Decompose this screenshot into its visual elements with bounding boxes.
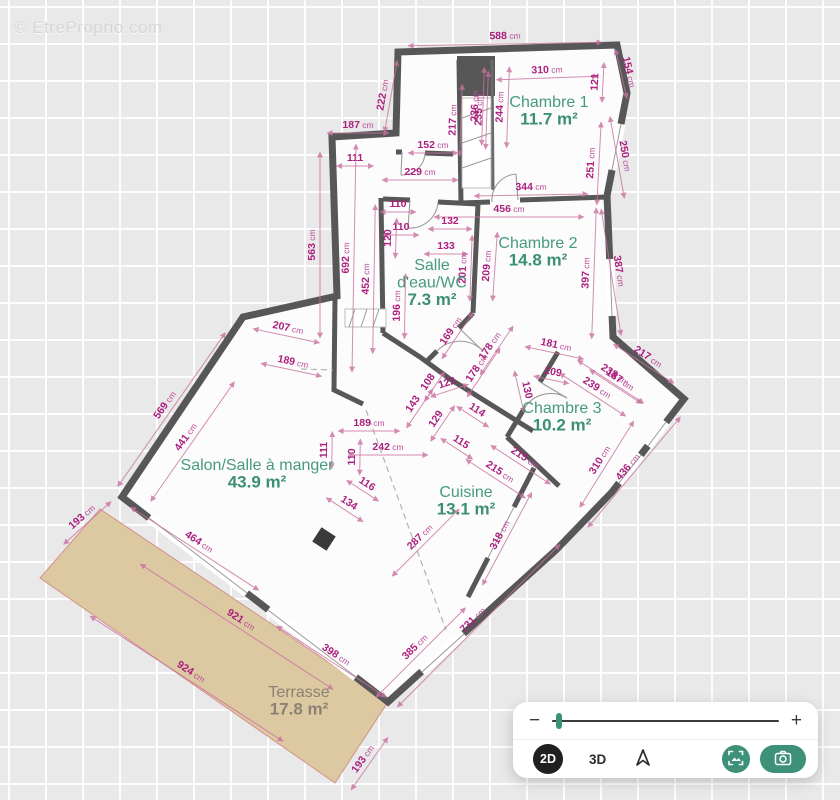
svg-text:217 cm: 217 cm [446,104,459,136]
svg-text:244 cm: 244 cm [493,91,506,123]
floorplan-viewer: © EtreProprio.com [0,0,840,800]
svg-text:110: 110 [346,448,358,465]
svg-text:588 cm: 588 cm [489,30,520,43]
north-arrow-icon [632,747,654,772]
svg-text:189 cm: 189 cm [353,417,384,429]
zoom-slider-row: − + [513,702,818,739]
zoom-slider[interactable] [552,720,779,722]
screenshot-button[interactable] [722,745,750,773]
svg-text:152 cm: 152 cm [417,139,448,151]
svg-text:563 cm: 563 cm [306,229,318,260]
room-label: Cuisine13.1 m² [437,484,496,519]
svg-text:196 cm: 196 cm [391,290,404,321]
svg-text:Salon/Salle à manger: Salon/Salle à manger [181,457,335,474]
mode-2d-button[interactable]: 2D [533,744,563,774]
mode-row: 2D 3D [513,740,818,778]
wall-block [457,56,495,96]
zoom-in-button[interactable]: + [791,711,802,730]
viewer-toolbar: − + 2D 3D [513,702,818,778]
svg-text:14.8 m²: 14.8 m² [509,251,568,270]
north-arrow-button[interactable] [632,747,654,772]
svg-text:209 cm: 209 cm [480,250,494,282]
svg-text:452 cm: 452 cm [360,263,373,294]
svg-text:111: 111 [318,442,330,459]
floorplan-drawing[interactable]: 588 cm310 cm154 cm121236 cm235 cm244 cm2… [0,0,840,800]
svg-text:11.7 m²: 11.7 m² [520,110,578,129]
room-label: Chambre 214.8 m² [498,235,577,270]
svg-text:Chambre 3: Chambre 3 [522,400,601,417]
svg-text:310 cm: 310 cm [531,63,563,76]
svg-text:110: 110 [390,198,407,210]
mode-3d-button[interactable]: 3D [589,752,606,767]
svg-text:344 cm: 344 cm [515,181,546,194]
svg-text:Chambre 1: Chambre 1 [509,94,588,111]
room-label: Chambre 111.7 m² [509,94,588,129]
zoom-out-button[interactable]: − [529,711,540,730]
svg-text:456 cm: 456 cm [493,203,524,215]
svg-text:13.1 m²: 13.1 m² [437,500,496,519]
zoom-slider-handle[interactable] [556,713,562,729]
room-label: Terrasse17.8 m² [268,684,329,719]
svg-text:229 cm: 229 cm [404,166,435,178]
svg-text:251 cm: 251 cm [584,147,598,179]
camera-icon [771,746,795,773]
svg-text:397 cm: 397 cm [579,257,592,289]
screenshot-icon [726,748,746,771]
svg-text:187 cm: 187 cm [342,119,373,131]
svg-text:17.8 m²: 17.8 m² [270,700,329,719]
room-label: Chambre 310.2 m² [522,400,601,435]
camera-button[interactable] [760,745,806,773]
svg-text:d'eau/WC: d'eau/WC [397,275,467,292]
svg-text:235 cm: 235 cm [472,94,485,126]
hall-cabinet [345,309,386,327]
svg-text:121: 121 [589,73,602,91]
svg-text:7.3 m²: 7.3 m² [407,290,456,309]
svg-text:110: 110 [393,221,410,233]
svg-text:10.2 m²: 10.2 m² [533,416,592,435]
svg-text:Terrasse: Terrasse [268,684,329,701]
svg-text:132: 132 [441,215,459,227]
svg-text:111: 111 [347,152,364,164]
svg-text:133: 133 [437,240,455,252]
svg-text:Salle: Salle [414,257,450,274]
svg-text:43.9 m²: 43.9 m² [228,473,287,492]
svg-text:Chambre 2: Chambre 2 [498,235,577,252]
dimension-label: 588 cm [408,28,602,45]
svg-text:Cuisine: Cuisine [439,484,492,501]
svg-text:120: 120 [382,229,395,247]
svg-text:242 cm: 242 cm [372,441,403,453]
svg-text:692 cm: 692 cm [340,242,353,273]
